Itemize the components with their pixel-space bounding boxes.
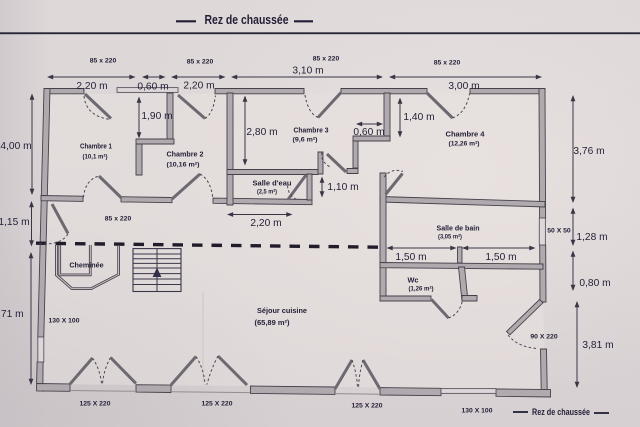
svg-text:130 X 100: 130 X 100 bbox=[462, 408, 493, 415]
svg-text:2,20 m: 2,20 m bbox=[183, 81, 214, 92]
svg-text:Chambre 1: Chambre 1 bbox=[80, 142, 112, 151]
svg-text:(12,26 m²): (12,26 m²) bbox=[449, 141, 480, 148]
svg-text:85 x 220: 85 x 220 bbox=[105, 216, 132, 223]
svg-text:Chambre 2: Chambre 2 bbox=[167, 150, 204, 159]
svg-text:Chambre 3: Chambre 3 bbox=[294, 126, 329, 135]
svg-text:3,00 m: 3,00 m bbox=[448, 81, 479, 92]
svg-text:125 X 220: 125 X 220 bbox=[352, 403, 383, 410]
svg-text:1,10 m: 1,10 m bbox=[327, 182, 358, 193]
svg-text:(10,16 m²): (10,16 m²) bbox=[167, 162, 200, 169]
svg-text:Séjour cuisine: Séjour cuisine bbox=[257, 306, 307, 315]
svg-text:Wc: Wc bbox=[408, 276, 419, 285]
svg-text:Salle de bain: Salle de bain bbox=[437, 224, 480, 233]
svg-text:Rez de chaussée: Rez de chaussée bbox=[532, 407, 590, 417]
svg-text:3,71 m: 3,71 m bbox=[0, 309, 24, 320]
svg-text:0,80 m: 0,80 m bbox=[579, 278, 610, 289]
svg-text:1,90 m: 1,90 m bbox=[141, 111, 172, 122]
svg-text:3,81 m: 3,81 m bbox=[582, 340, 613, 351]
svg-text:Chambre 4: Chambre 4 bbox=[446, 130, 485, 139]
svg-text:2,20 m: 2,20 m bbox=[250, 218, 281, 229]
svg-text:3,76 m: 3,76 m bbox=[573, 146, 604, 157]
svg-text:0,60 m: 0,60 m bbox=[137, 82, 168, 93]
svg-text:130 X 100: 130 X 100 bbox=[49, 318, 80, 325]
svg-text:4,00 m: 4,00 m bbox=[0, 141, 31, 152]
svg-text:85 x 220: 85 x 220 bbox=[434, 60, 461, 67]
svg-text:2,80 m: 2,80 m bbox=[246, 127, 277, 138]
svg-text:85 x 220: 85 x 220 bbox=[313, 56, 340, 63]
svg-text:125 X 220: 125 X 220 bbox=[202, 401, 233, 408]
svg-text:(1,26 m²): (1,26 m²) bbox=[409, 286, 434, 293]
svg-text:1,50 m: 1,50 m bbox=[485, 252, 516, 263]
svg-text:85 x 220: 85 x 220 bbox=[187, 59, 214, 66]
svg-text:2,20 m: 2,20 m bbox=[76, 81, 107, 92]
svg-text:1,40 m: 1,40 m bbox=[403, 112, 434, 123]
svg-text:(9,6 m²): (9,6 m²) bbox=[293, 137, 318, 144]
svg-text:125 X 220: 125 X 220 bbox=[80, 401, 111, 408]
svg-text:1,15 m: 1,15 m bbox=[0, 217, 30, 228]
svg-text:50 X 50: 50 X 50 bbox=[547, 228, 571, 235]
svg-text:(10,1 m²): (10,1 m²) bbox=[83, 154, 108, 161]
svg-text:90 X 220: 90 X 220 bbox=[530, 334, 557, 341]
svg-text:1,28 m: 1,28 m bbox=[576, 232, 607, 243]
svg-text:(3,05 m²): (3,05 m²) bbox=[438, 234, 462, 241]
svg-text:Salle d'eau: Salle d'eau bbox=[253, 179, 292, 188]
svg-text:1,50 m: 1,50 m bbox=[395, 252, 426, 263]
svg-text:0,60 m: 0,60 m bbox=[353, 127, 384, 138]
svg-text:3,10 m: 3,10 m bbox=[292, 66, 323, 77]
svg-text:Cheminée: Cheminée bbox=[69, 261, 103, 270]
svg-text:(65,89 m²): (65,89 m²) bbox=[255, 320, 290, 327]
svg-text:(2,5 m²): (2,5 m²) bbox=[257, 189, 277, 196]
svg-text:Rez de chaussée: Rez de chaussée bbox=[205, 12, 289, 27]
svg-text:85 x 220: 85 x 220 bbox=[90, 58, 117, 65]
